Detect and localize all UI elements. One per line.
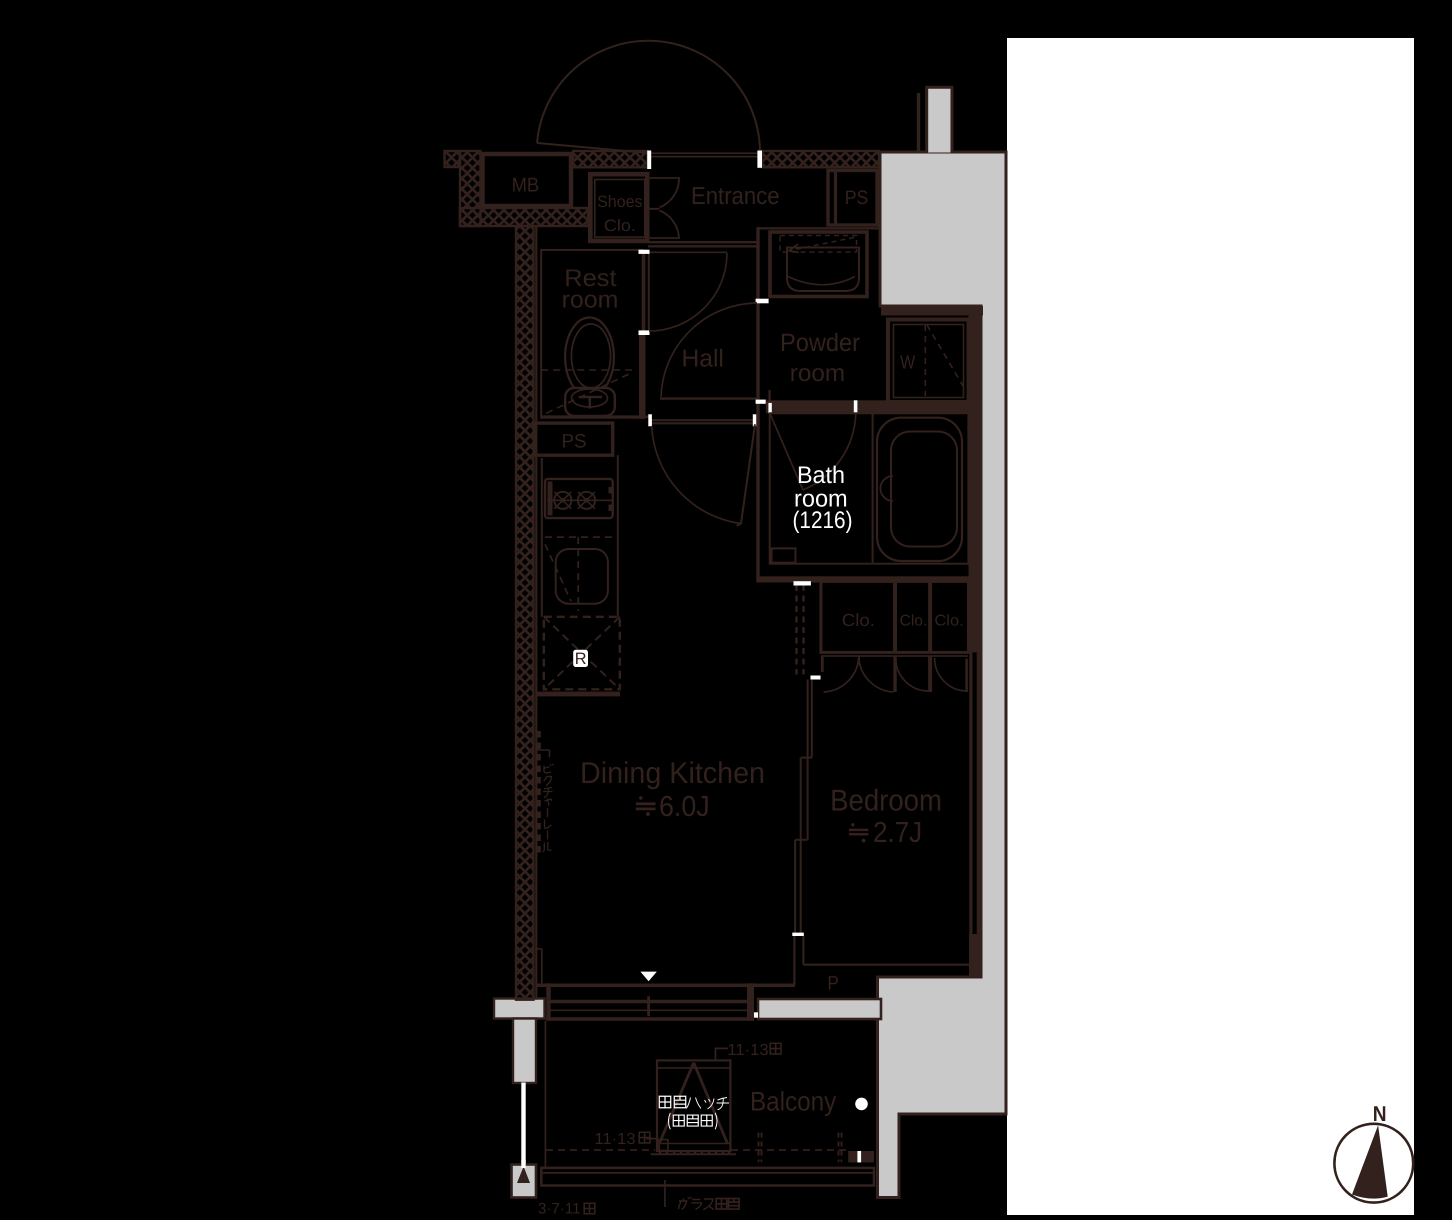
svg-text:Clo.: Clo. <box>604 217 636 235</box>
svg-text:11·13: 11·13 <box>728 1042 769 1059</box>
svg-text:2.7J: 2.7J <box>873 817 922 849</box>
svg-text:Powder: Powder <box>780 329 860 357</box>
svg-text:Clo.: Clo. <box>900 613 928 630</box>
svg-text:Dining Kitchen: Dining Kitchen <box>580 757 765 790</box>
svg-text:Hall: Hall <box>682 345 724 372</box>
svg-text:R: R <box>575 650 587 668</box>
svg-text:W: W <box>900 353 915 374</box>
svg-text:room: room <box>790 360 845 387</box>
svg-text:Clo.: Clo. <box>842 610 875 630</box>
svg-text:Entrance: Entrance <box>691 183 780 210</box>
svg-text:3·7·11: 3·7·11 <box>538 1201 581 1218</box>
svg-text:P: P <box>827 973 839 995</box>
svg-text:PS: PS <box>845 187 869 209</box>
svg-text:N: N <box>1373 1102 1387 1126</box>
svg-text:Balcony: Balcony <box>750 1086 837 1116</box>
svg-text:room: room <box>562 287 619 314</box>
svg-text:11·13: 11·13 <box>595 1131 636 1148</box>
svg-text:PS: PS <box>562 431 587 453</box>
svg-text:Shoes: Shoes <box>597 193 643 211</box>
svg-text:MB: MB <box>512 175 540 197</box>
svg-text:Bedroom: Bedroom <box>830 785 942 818</box>
svg-text:Clo.: Clo. <box>934 613 963 630</box>
svg-text:6.0J: 6.0J <box>659 791 710 823</box>
svg-text:(1216): (1216) <box>793 507 853 534</box>
